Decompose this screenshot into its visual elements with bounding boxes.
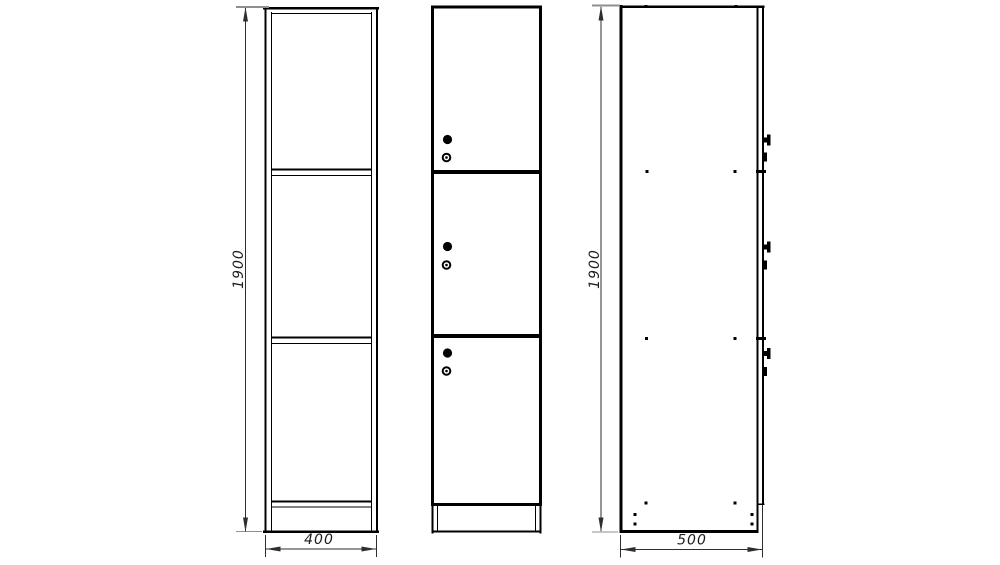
front-width-value: 400 — [304, 532, 334, 548]
front-height-value: 1900 — [231, 249, 247, 289]
door-3-keyhole-pin — [445, 370, 448, 373]
arrowhead-left-icon — [621, 547, 636, 552]
door-1-cam-lock-cap — [767, 135, 771, 146]
door-2-cam-lock-stem — [764, 245, 768, 250]
screw-icon — [734, 502, 737, 505]
screw-icon — [634, 523, 637, 526]
arrowhead-left-icon — [266, 547, 281, 552]
side-height-dimension: 1900 — [587, 6, 620, 533]
screw-icon — [751, 523, 754, 526]
door-1-lock-knob-icon — [443, 135, 452, 144]
arrowhead-down-icon — [599, 518, 604, 533]
drawing-canvas: 1900 400 1900 500 — [0, 0, 1000, 565]
screw-icon — [634, 513, 637, 516]
technical-drawing-locker: 1900 400 1900 500 — [0, 0, 1000, 565]
front-width-dimension: 400 — [266, 532, 377, 557]
side-depth-value: 500 — [677, 533, 707, 549]
side-view — [620, 5, 771, 533]
screw-icon — [735, 5, 738, 8]
front-height-dimension: 1900 — [231, 7, 269, 532]
door-1-cam-lock-stem — [764, 138, 768, 143]
side-screw-dots — [634, 5, 754, 526]
arrowhead-right-icon — [362, 547, 377, 552]
door-2-cam-lock-cap — [767, 242, 771, 253]
front-doors-view — [431, 6, 542, 534]
side-height-value: 1900 — [587, 249, 603, 289]
arrowhead-up-icon — [243, 7, 248, 22]
screw-icon — [751, 513, 754, 516]
screw-icon — [645, 337, 648, 340]
door-2-keyhole-pin — [445, 264, 448, 267]
screw-icon — [645, 5, 648, 8]
door-3-cam-lock-stem — [764, 351, 768, 356]
screw-icon — [645, 502, 648, 505]
arrowhead-down-icon — [243, 518, 248, 533]
dimension-annotations: 1900 400 1900 500 — [231, 6, 763, 558]
arrowhead-right-icon — [748, 547, 763, 552]
door-2-lock-knob-icon — [443, 242, 452, 251]
door-3-latch — [763, 367, 767, 376]
screw-icon — [646, 170, 649, 173]
screw-icon — [734, 337, 737, 340]
screw-icon — [734, 170, 737, 173]
door-3-cam-lock-cap — [767, 348, 771, 359]
arrowhead-up-icon — [599, 6, 604, 21]
door-3-lock-knob-icon — [443, 348, 452, 357]
front-carcass-view — [263, 7, 379, 533]
door-2-latch — [763, 261, 767, 270]
door-1-latch — [763, 153, 767, 162]
door-1-keyhole-pin — [445, 156, 448, 159]
